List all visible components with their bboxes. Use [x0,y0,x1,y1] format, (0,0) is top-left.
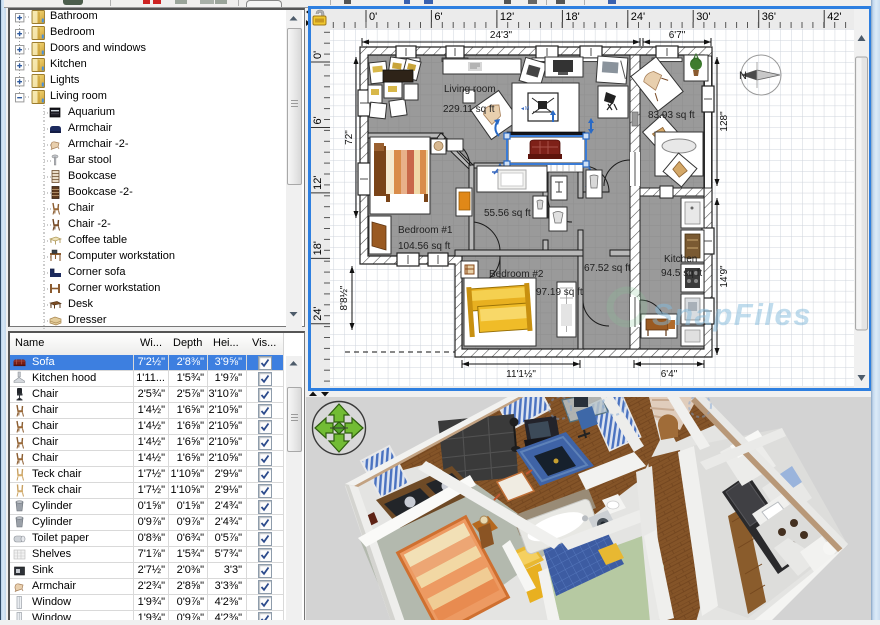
svg-text:6'7": 6'7" [669,30,686,41]
svg-text:0': 0' [312,51,324,59]
svg-text:24': 24' [312,306,324,320]
svg-text:6'4": 6'4" [661,369,678,380]
svg-text:Kitchen: Kitchen [664,254,697,265]
svg-text:◄M: ◄M [520,106,529,112]
svg-text:Bedroom #2: Bedroom #2 [489,269,544,280]
svg-text:55.56 sq ft: 55.56 sq ft [484,208,531,219]
svg-text:24': 24' [631,11,645,23]
svg-text:18': 18' [565,11,579,23]
svg-text:83.93 sq ft: 83.93 sq ft [648,110,695,121]
svg-text:18': 18' [312,241,324,255]
svg-text:12': 12' [500,11,514,23]
svg-text:128": 128" [719,111,730,132]
svg-text:97.19 sq ft: 97.19 sq ft [536,287,583,298]
svg-text:12': 12' [312,176,324,190]
svg-text:Living room: Living room [444,84,496,95]
svg-text:14'9": 14'9" [719,265,730,288]
svg-text:30': 30' [696,11,710,23]
svg-text:SnapFiles: SnapFiles [652,297,812,332]
svg-text:8'8½": 8'8½" [339,285,350,310]
svg-text:0': 0' [369,11,377,23]
svg-text:229.11 sq ft: 229.11 sq ft [443,104,495,115]
svg-text:72": 72" [344,130,355,145]
svg-text:104.56 sq ft: 104.56 sq ft [398,241,450,252]
svg-text:6': 6' [434,11,442,23]
svg-text:24'3": 24'3" [490,30,513,41]
svg-text:67.52 sq ft: 67.52 sq ft [584,263,631,274]
svg-text:36': 36' [762,11,776,23]
svg-text:94.5 sq ft: 94.5 sq ft [661,268,702,279]
svg-text:6': 6' [312,116,324,124]
svg-text:N: N [739,70,747,82]
svg-text:11'1½": 11'1½" [506,369,536,380]
svg-text:42': 42' [827,11,841,23]
svg-text:Bedroom #1: Bedroom #1 [398,225,453,236]
